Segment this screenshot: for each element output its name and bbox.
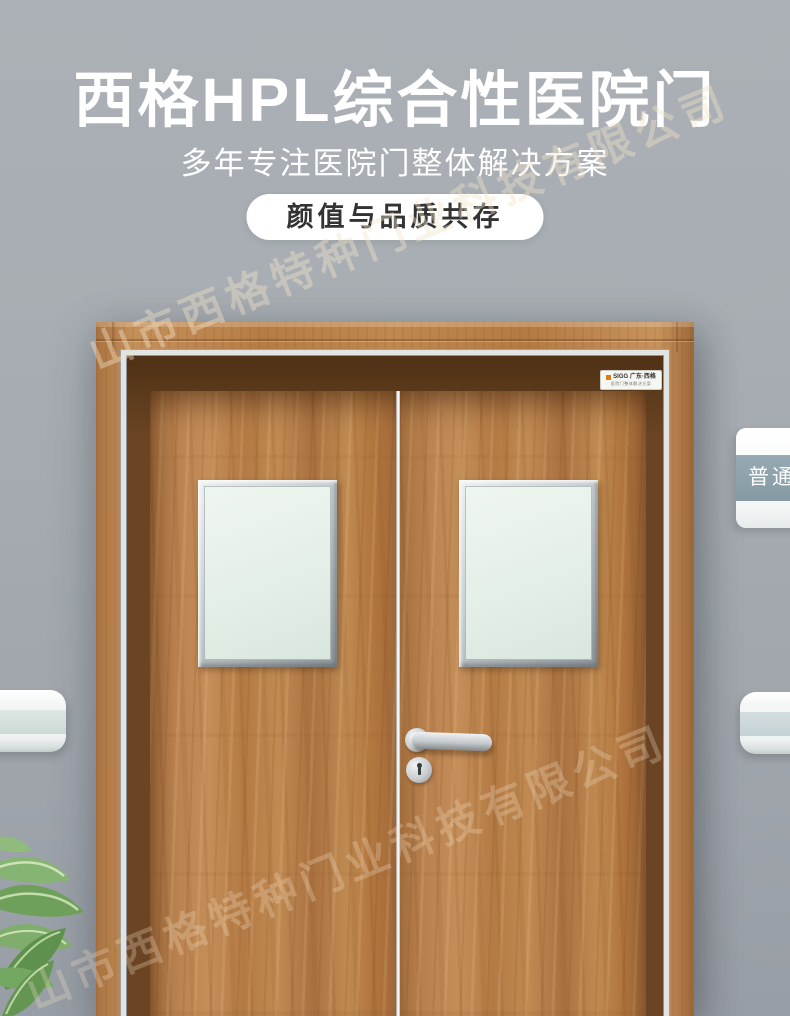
room-sign: 普通 (736, 428, 790, 528)
door-window-right (459, 480, 598, 667)
poster-canvas: 西格HPL综合性医院门 多年专注医院门整体解决方案 颜值与品质共存 (0, 0, 790, 1016)
frame-top-highlight (96, 322, 694, 327)
brand-logo-icon (606, 375, 611, 380)
page-title: 西格HPL综合性医院门 (0, 50, 790, 139)
brand-name-text: SIGG 广东·西格 (613, 374, 656, 381)
frame-corner-joint-right (676, 322, 678, 352)
wall-rail-band (740, 712, 790, 736)
brand-plate: SIGG 广东·西格 医院门整体解决方案 (600, 370, 662, 390)
window-glass (204, 486, 331, 660)
wall-rail-band (0, 710, 66, 734)
door-opening (121, 350, 669, 1016)
door-frame (96, 322, 694, 1016)
brand-name: SIGG 广东·西格 (606, 374, 656, 381)
keyhole-escutcheon (406, 757, 432, 783)
keyhole-slot (418, 766, 421, 775)
wall-rail-right (740, 692, 790, 754)
frame-corner-joint-left (112, 322, 114, 352)
door-window-left (198, 480, 337, 667)
brand-tagline: 医院门整体解决方案 (611, 381, 652, 386)
frame-head-groove-highlight (96, 341, 694, 342)
quality-badge: 颜值与品质共存 (247, 194, 544, 240)
page-subtitle: 多年专注医院门整体解决方案 (0, 138, 790, 183)
window-glass (465, 486, 592, 660)
room-sign-label: 普通 (736, 455, 790, 501)
wall-rail-left (0, 690, 66, 752)
plant-decoration (0, 828, 106, 1016)
lever-handle (412, 732, 493, 752)
